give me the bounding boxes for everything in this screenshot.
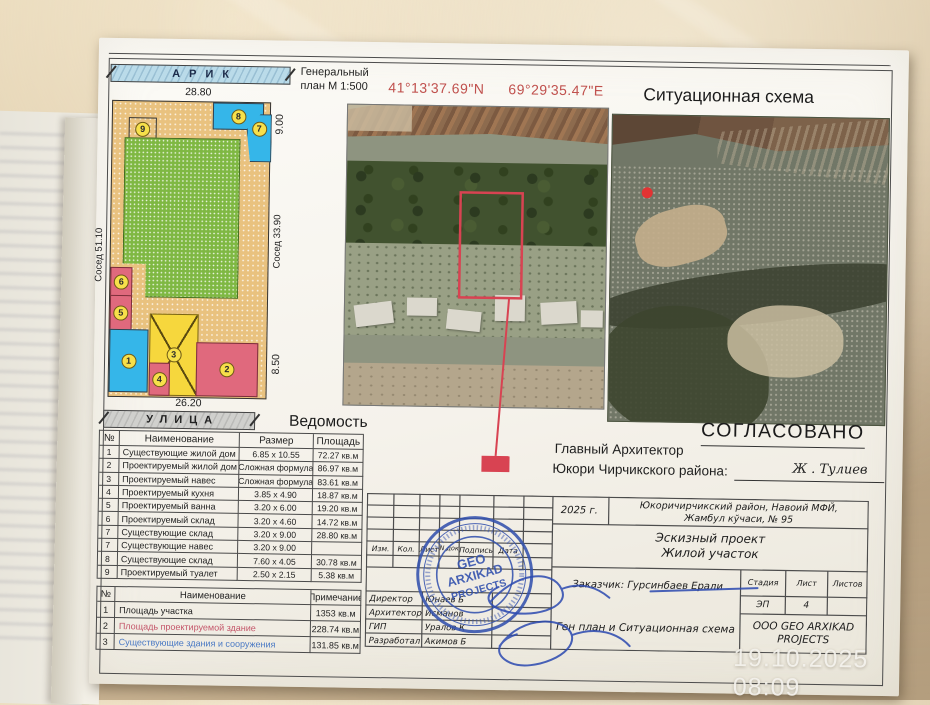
cell-name: Проектируемый туалет xyxy=(118,566,238,581)
cell-num: 1 xyxy=(100,446,120,460)
situational-scheme-title: Ситуационная схема xyxy=(643,84,883,109)
tb-col-data: Дата xyxy=(493,546,523,555)
tb-col-podpis: Подпись xyxy=(459,545,493,555)
cell-area: 72.27 кв.м xyxy=(313,449,363,463)
col-header: № xyxy=(100,431,120,446)
cell-num: 3 xyxy=(99,472,119,486)
cell-num: 7 xyxy=(98,526,118,540)
dim-bottom: 26.20 xyxy=(133,396,243,410)
dim-right-bottom: 8.50 xyxy=(270,348,283,380)
tb-col-kol: Кол. xyxy=(393,544,419,553)
cell-num: 2 xyxy=(97,618,115,634)
dim-right-neighbor: Сосед 33.90 xyxy=(271,196,283,286)
tb-col-list: Лист xyxy=(419,545,439,554)
plan-garden-area xyxy=(122,137,240,299)
title-block: Изм. Кол. Лист N док Подпись Дата Директ… xyxy=(365,493,869,655)
tb-role-director: Директор xyxy=(369,594,413,605)
cell-name: Существующие здания и сооружения xyxy=(115,634,311,653)
cell-area: 14.72 кв.м xyxy=(312,516,362,530)
vedomost-table: № Наименование Размер Площадь 1Существую… xyxy=(97,430,364,583)
plan-block-6: 6 xyxy=(110,267,132,297)
block-number-6: 6 xyxy=(114,274,129,289)
cell-size: 3.20 x 6.00 xyxy=(239,501,313,515)
coordinate-east: 69°29'35.47"E xyxy=(508,81,604,98)
satellite-image-parcel xyxy=(342,104,609,410)
cell-num: 1 xyxy=(97,602,115,618)
cell-num: 7 xyxy=(98,539,118,553)
cell-area: 30.78 кв.м xyxy=(312,555,362,569)
block-number-9: 9 xyxy=(135,122,150,137)
dim-right-top: 9.00 xyxy=(273,106,286,142)
cell-area: 19.20 кв.м xyxy=(313,502,363,516)
coordinate-north: 41°13'37.69"N xyxy=(388,79,484,97)
tb-role-gip: ГИП xyxy=(369,622,387,632)
col-header: Примечание xyxy=(311,590,361,606)
approved-stamp-word: СОГЛАСОВАНО xyxy=(701,419,865,449)
cell-size: 3.20 x 9.00 xyxy=(238,541,312,555)
dim-left-neighbor: Сосед 51.10 xyxy=(93,203,106,308)
col-header: № xyxy=(97,587,115,602)
plan-block-5: 5 xyxy=(110,295,133,331)
cell-note: 1353 кв.м xyxy=(311,605,361,622)
cell-size: 3.20 x 9.00 xyxy=(238,528,312,542)
cell-num: 4 xyxy=(99,486,119,500)
cell-size: 3.85 x 4.90 xyxy=(239,488,313,502)
cell-num: 8 xyxy=(98,552,118,566)
cell-size: 7.60 x 4.05 xyxy=(238,554,312,568)
street-label: УЛИЦА xyxy=(146,413,219,426)
cell-size: Сложная формула xyxy=(239,461,313,475)
tb-list-value: 4 xyxy=(785,601,827,612)
tb-col-ndok: N док xyxy=(439,545,459,553)
satellite-building xyxy=(495,295,525,321)
document-sheet: АРИК 28.80 Генеральный план М 1:500 41°1… xyxy=(89,38,909,697)
plan-block-2: 2 xyxy=(196,342,259,397)
cell-num: 9 xyxy=(98,565,118,579)
cell-note: 228.74 кв.м xyxy=(311,621,361,638)
block-number-8: 8 xyxy=(231,109,246,124)
cell-num: 3 xyxy=(97,634,115,650)
tb-name-architect: Исманов xyxy=(425,609,464,620)
areas-table: № Наименование Примечание 1Площадь участ… xyxy=(96,586,362,654)
satellite-trees-texture xyxy=(346,161,607,253)
photo-timestamp: 19.10.2025 08:09 xyxy=(733,644,930,704)
tb-name-developer: Акимов Б xyxy=(425,637,467,648)
tb-list-header: Лист xyxy=(786,579,828,589)
cell-size: 6.85 x 10.55 xyxy=(239,448,313,462)
satellite-image-area xyxy=(607,114,890,426)
canal-banner: АРИК xyxy=(110,64,290,85)
tb-name-gip: Уралов К xyxy=(425,623,465,634)
tb-stage-header: Стадия xyxy=(741,578,786,588)
tb-role-developer: Разработал xyxy=(369,636,421,647)
satellite-building xyxy=(446,309,482,332)
cell-area: 5.38 кв.м xyxy=(312,569,362,583)
tb-year: 2025 г. xyxy=(561,505,598,518)
cell-note: 131.85 кв.м xyxy=(310,637,360,654)
cell-area: 86.97 кв.м xyxy=(313,462,363,476)
tb-col-izm: Изм. xyxy=(368,544,393,553)
block-number-7: 7 xyxy=(252,121,267,136)
plan-block-1: 1 xyxy=(109,329,149,393)
general-plan: 9 8 7 6 5 1 3 4 2 xyxy=(107,100,271,399)
block-number-3: 3 xyxy=(166,347,181,362)
satellite-road-strip xyxy=(343,363,604,409)
block-number-4: 4 xyxy=(152,372,167,387)
cell-size: 3.20 x 4.60 xyxy=(238,514,312,528)
location-marker-dot xyxy=(642,187,653,198)
cell-area xyxy=(312,542,362,556)
architect-signature-name: Ж . Тулиев xyxy=(792,462,867,478)
genplan-line1: Генеральный xyxy=(301,65,369,80)
tb-role-architect: Архитектор xyxy=(369,608,422,619)
canal-label: АРИК xyxy=(172,68,238,81)
cell-area: 18.87 кв.м xyxy=(313,489,363,503)
cell-size: Сложная формула xyxy=(239,475,313,489)
satellite-corner-patch xyxy=(348,105,412,132)
tb-stage-value: ЭП xyxy=(740,600,785,612)
tb-name-director: Юнаев Б xyxy=(425,595,464,606)
block-number-1: 1 xyxy=(121,353,136,368)
cell-num: 2 xyxy=(99,459,119,473)
cell-num: 5 xyxy=(99,499,119,513)
approval-line2: Юкори Чирчикского района: xyxy=(552,461,728,479)
genplan-line2: план М 1:500 xyxy=(300,79,368,94)
satellite-building xyxy=(407,298,437,316)
vedomost-title: Ведомость xyxy=(289,413,368,432)
tb-listov-header: Листов xyxy=(828,579,868,589)
cell-num: 6 xyxy=(98,512,118,526)
dim-top: 28.80 xyxy=(138,85,258,99)
col-header: Размер xyxy=(240,433,314,449)
street-banner: УЛИЦА xyxy=(103,410,255,430)
cell-area: 28.80 кв.м xyxy=(312,529,362,543)
block-number-2: 2 xyxy=(219,362,234,377)
col-header: Площадь xyxy=(314,434,364,450)
satellite-building xyxy=(581,310,603,327)
satellite-building xyxy=(540,301,577,325)
cell-size: 2.50 x 2.15 xyxy=(238,568,312,582)
genplan-label: Генеральный план М 1:500 xyxy=(300,65,368,94)
approval-line1: Главный Архитектор xyxy=(555,441,684,458)
satellite-building xyxy=(354,301,394,328)
plan-block-4: 4 xyxy=(149,363,171,396)
satellite-sand-patch xyxy=(727,305,844,379)
block-number-5: 5 xyxy=(113,305,128,320)
cell-area: 83.61 кв.м xyxy=(313,476,363,490)
